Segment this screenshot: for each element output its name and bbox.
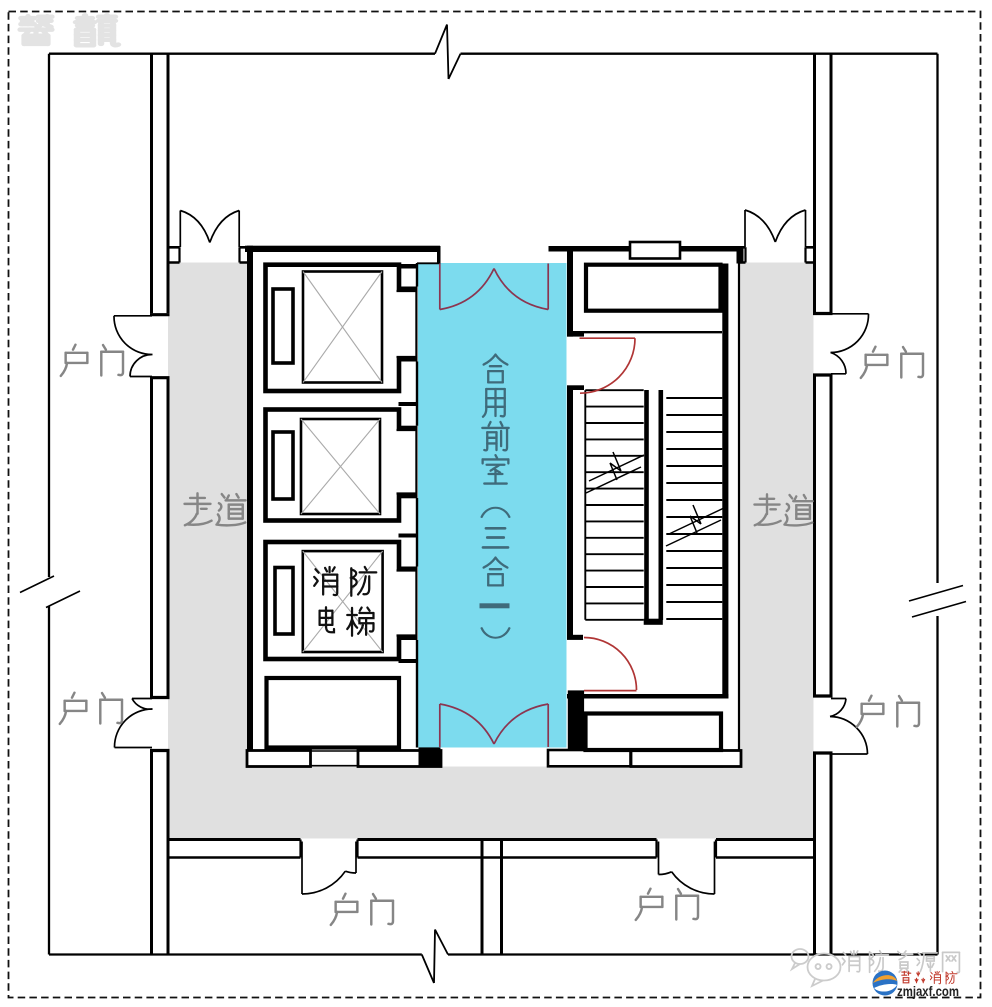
svg-text:zmjaxf.com: zmjaxf.com (897, 984, 959, 999)
